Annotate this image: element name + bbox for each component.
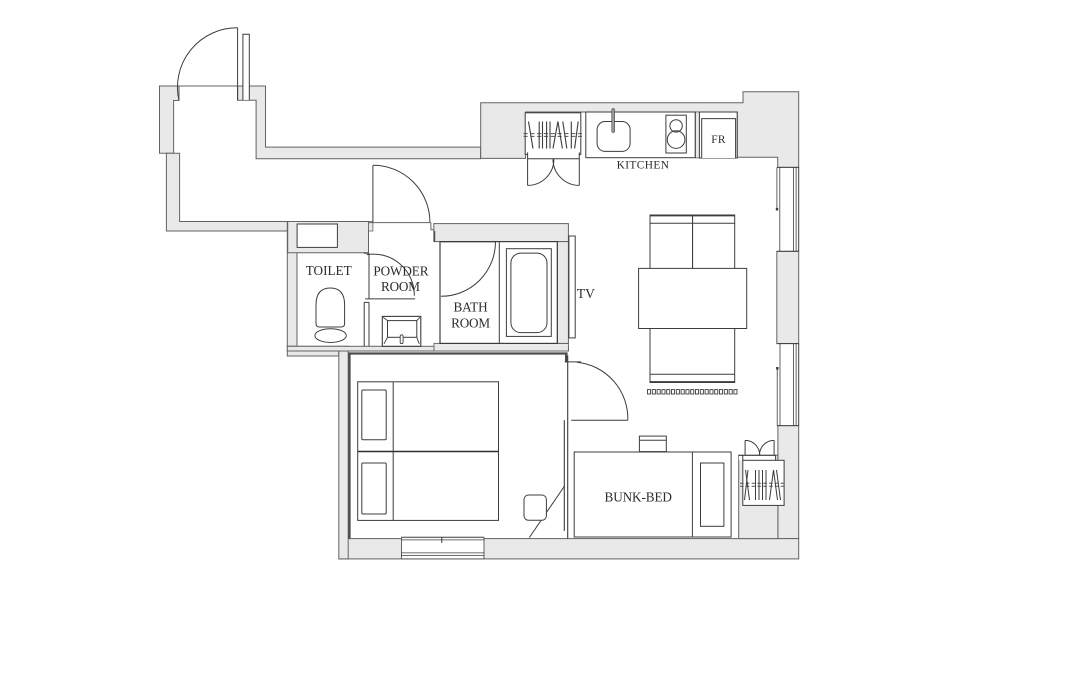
svg-text:TV: TV [577,286,595,301]
svg-text:BUNK-BED: BUNK-BED [605,489,672,504]
svg-text:FR: FR [711,134,726,146]
svg-text:KITCHEN: KITCHEN [617,159,670,171]
svg-text:POWDER: POWDER [373,263,428,278]
svg-text:ROOM: ROOM [451,315,490,330]
svg-text:BATH: BATH [453,299,488,314]
svg-text:TOILET: TOILET [306,263,352,278]
svg-text:ROOM: ROOM [381,279,420,294]
